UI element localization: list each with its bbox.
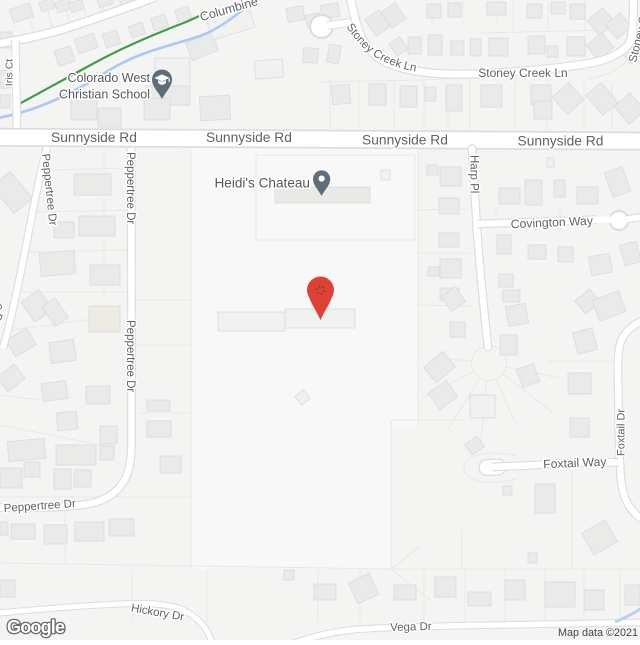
svg-text:Map data ©2021: Map data ©2021 <box>558 627 638 639</box>
svg-text:Christian School: Christian School <box>59 88 150 102</box>
svg-text:Google: Google <box>7 617 65 637</box>
svg-text:Sunnyside Rd: Sunnyside Rd <box>206 130 292 145</box>
svg-text:Harp Pl: Harp Pl <box>468 155 480 193</box>
svg-text:Foxtail Dr: Foxtail Dr <box>616 409 628 456</box>
svg-text:Colorado West: Colorado West <box>68 71 151 85</box>
svg-text:Peppertree Dr: Peppertree Dr <box>124 320 136 392</box>
svg-text:Foxtail Way: Foxtail Way <box>543 455 608 472</box>
svg-text:Stoney Creek Ln: Stoney Creek Ln <box>478 66 567 80</box>
svg-text:Peppertree Dr: Peppertree Dr <box>124 152 136 224</box>
svg-text:Sunnyside Rd: Sunnyside Rd <box>51 130 137 145</box>
svg-text:Heidi's Chateau: Heidi's Chateau <box>214 176 310 191</box>
svg-text:Sunnyside Rd: Sunnyside Rd <box>518 134 604 149</box>
svg-text:Sunnyside Rd: Sunnyside Rd <box>362 133 448 148</box>
svg-text:Vega Dr: Vega Dr <box>390 621 432 634</box>
svg-text:Iris Ct: Iris Ct <box>4 59 16 86</box>
